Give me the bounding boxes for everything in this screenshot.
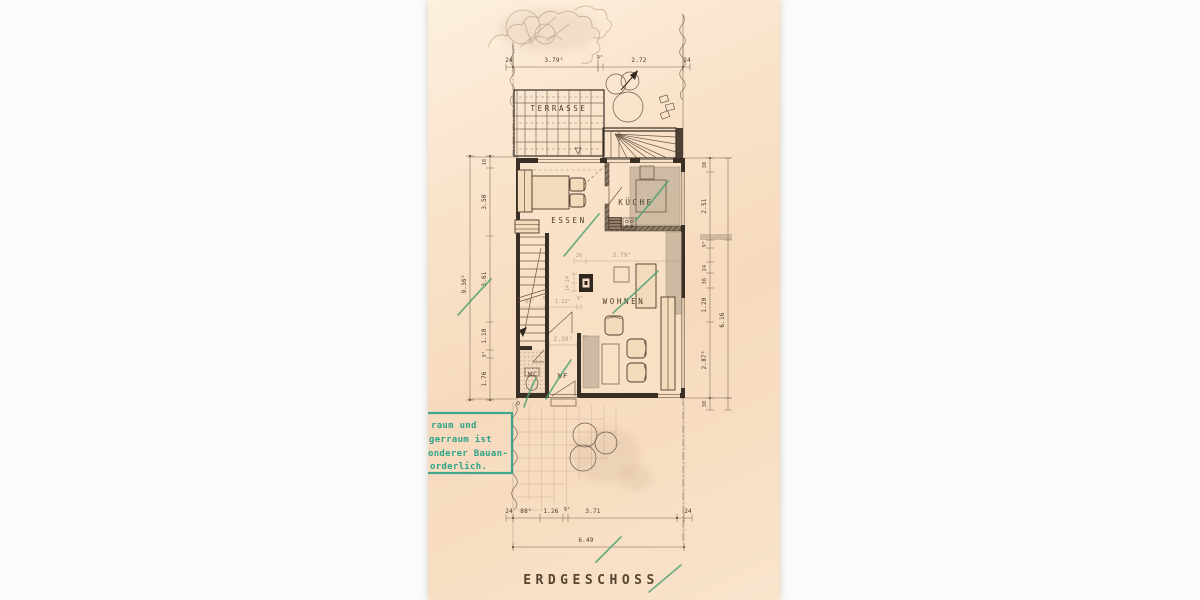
dim-left-9: 9⁵ — [482, 351, 488, 357]
dim-right-287: 2.87⁵ — [701, 350, 708, 369]
floorplan-svg: 24 3.79⁵ 9⁵ 2.72 24 18 3.50 3.61 1.10 9⁵… — [428, 0, 780, 600]
terrace — [514, 90, 604, 156]
kitchen-counter — [630, 167, 680, 225]
entrance-step — [551, 399, 576, 406]
scanned-floorplan-paper: 24 3.79⁵ 9⁵ 2.72 24 18 3.50 3.61 1.10 9⁵… — [428, 0, 780, 600]
wohnen-sideboard — [583, 336, 599, 388]
dim-right-251: 2.51 — [701, 198, 708, 213]
dim-left-18: 18 — [482, 159, 488, 165]
dim-bottom-24-right: 24 — [684, 508, 692, 515]
shrub-circles-top — [606, 72, 643, 122]
chimney — [579, 274, 593, 292]
dim-right-120: 1.20 — [701, 297, 708, 312]
approval-stamp: raum und gerraum ist onderer Bauan- orde… — [428, 413, 512, 473]
essen-dining-table — [532, 176, 569, 209]
dim-bottom-88: 88⁵ — [520, 508, 531, 515]
room-label-essen: ESSEN — [551, 216, 587, 225]
pencil-mark-bottom-dim — [596, 537, 621, 562]
survey-point — [517, 402, 520, 405]
dim-bottom-371: 3.71 — [585, 508, 600, 515]
stamp-text-line3: onderer Bauan- — [428, 449, 508, 459]
scanned-page: 24 3.79⁵ 9⁵ 2.72 24 18 3.50 3.61 1.10 9⁵… — [0, 0, 1200, 600]
dim-bottom-126: 1.26 — [543, 508, 558, 515]
stamp-text-line2: gerraum ist — [429, 434, 492, 445]
dim-bottom-24-left: 24 — [505, 508, 513, 515]
dim-left-total: 9.36⁵ — [461, 274, 468, 293]
dim-left-110: 1.10 — [481, 328, 488, 343]
dim-top-24-left: 24 — [505, 57, 513, 64]
dim-right-9: 9⁵ — [702, 241, 708, 247]
north-arrow — [621, 70, 638, 90]
dim-bottom-total: 6.49 — [578, 537, 593, 544]
essen-bench — [515, 220, 539, 233]
dim-right-30-bottom: 30 — [702, 401, 708, 407]
dim-top-272: 2.72 — [631, 57, 646, 64]
wall-section-mark — [700, 234, 732, 240]
room-label-wc: WC — [528, 370, 538, 378]
dim-right-30-top: 30 — [702, 162, 708, 168]
dim-right-total: 6.16 — [719, 312, 726, 327]
dim-left-350: 3.50 — [481, 194, 488, 209]
exterior-stair — [603, 128, 683, 158]
room-label-terrasse: TERRASSE — [531, 104, 588, 113]
stamp-text-line1: raum und — [431, 421, 477, 431]
room-label-wohnen: WOHNEN — [603, 297, 646, 306]
stamp-text-line4: orderlich. — [430, 461, 487, 472]
dim-top-24-right: 24 — [683, 57, 691, 64]
plan-title: ERDGESCHOSS — [523, 573, 659, 588]
dim-right-24: 24 — [702, 265, 708, 271]
wohnen-armchair-3 — [627, 363, 646, 382]
dim-left-176: 1.76 — [481, 371, 488, 386]
wohnen-armchair-2 — [627, 339, 646, 358]
dim-top-9: 9⁵ — [597, 55, 603, 61]
dust-bins — [659, 95, 674, 119]
pencil-smudge — [620, 465, 652, 491]
dim-top-379: 3.79⁵ — [544, 57, 563, 64]
dim-right-36: 36 — [702, 278, 708, 284]
dim-bottom-9: 9⁶ — [564, 507, 570, 513]
